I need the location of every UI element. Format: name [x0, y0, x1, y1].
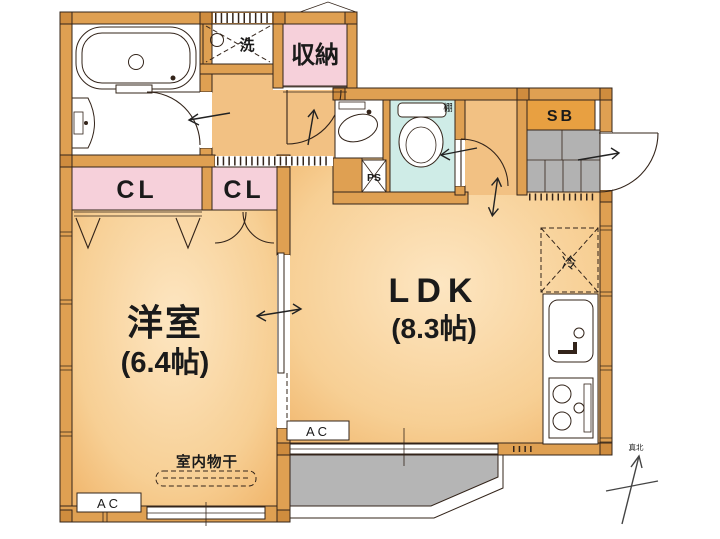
genkan — [527, 130, 600, 192]
post — [60, 510, 72, 522]
true-north-label: 真北 — [629, 442, 644, 452]
wall-segment — [60, 155, 215, 167]
bathtub-faucet-dot — [171, 76, 176, 81]
bath-door-opening — [200, 92, 212, 148]
western-room-size: (6.4帖) — [121, 346, 210, 379]
post — [277, 510, 290, 522]
western-room-label: 洋室 — [127, 302, 203, 343]
indoor-drying-label: 室内物干 — [176, 453, 238, 471]
post — [200, 12, 212, 24]
balcony-floor — [290, 455, 498, 506]
wall-segment — [517, 100, 527, 195]
ldk-label: LDK — [389, 272, 480, 310]
wall-segment — [200, 64, 273, 74]
entrance-opening — [600, 132, 612, 190]
wall-segment — [60, 12, 72, 522]
floorplan-svg: 収納 CL CL 洗 — [0, 0, 720, 539]
laundry-label: 洗 — [239, 36, 254, 54]
pipe-space-label: PS — [367, 172, 381, 184]
toilet-tank — [398, 103, 446, 117]
post — [517, 88, 529, 100]
shelf-label: 棚 — [443, 102, 453, 114]
storage-label: 収納 — [291, 41, 339, 69]
wall-segment — [277, 428, 290, 522]
closet-small-label: CL — [223, 176, 264, 204]
refrigerator-label: 冷 — [561, 255, 576, 272]
wall-segment — [455, 186, 465, 195]
bathtub-step — [116, 85, 152, 93]
toilet-bowl — [399, 117, 443, 167]
post — [600, 88, 612, 100]
wall-segment — [455, 100, 465, 140]
north-arrow: 真北 — [606, 442, 658, 524]
post — [345, 12, 357, 24]
bath-washbasin-dot — [84, 121, 88, 125]
post — [333, 88, 345, 100]
top-chevron — [300, 2, 356, 12]
post — [600, 443, 612, 455]
post — [60, 155, 72, 167]
wall-segment — [333, 192, 468, 204]
ac-label-ldk: AC — [306, 424, 330, 439]
post — [277, 443, 290, 455]
post — [60, 12, 72, 24]
floorplan-page: 収納 CL CL 洗 — [0, 0, 720, 539]
wall-segment — [202, 167, 212, 210]
shoe-box-label: SB — [547, 108, 575, 125]
toilet-door-opening — [455, 140, 465, 186]
north-arrow-shaft — [622, 456, 639, 524]
closet-large-label: CL — [116, 176, 157, 204]
bathtub — [76, 27, 196, 89]
balcony — [282, 455, 503, 518]
vanity-faucet — [367, 110, 372, 115]
ldk-size: (8.3帖) — [391, 313, 477, 344]
ac-label-west: AC — [97, 496, 121, 511]
wall-segment — [277, 167, 290, 255]
wall-segment — [333, 88, 612, 100]
post — [273, 12, 285, 24]
